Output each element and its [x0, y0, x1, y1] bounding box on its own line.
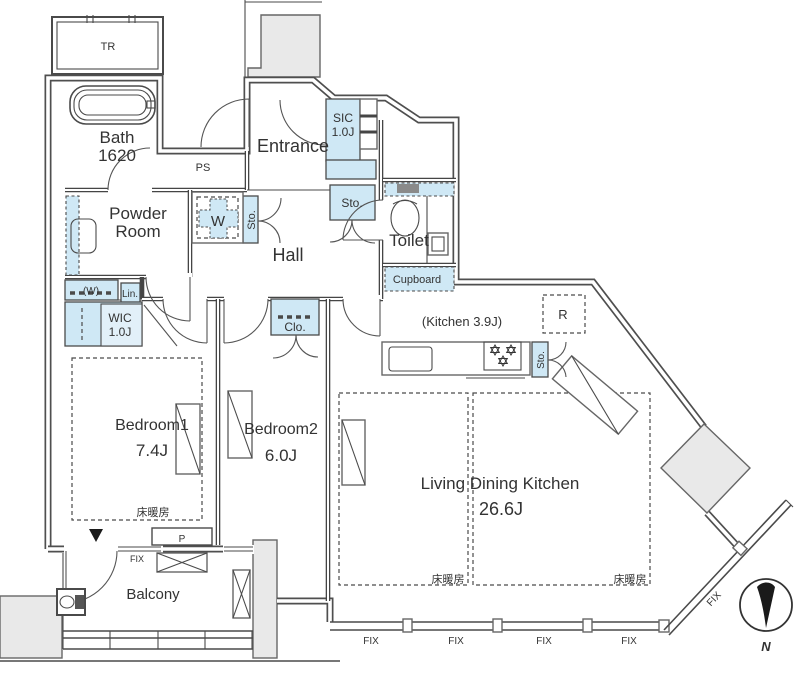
label-floor-heating-bd1: 床暖房	[137, 505, 170, 519]
label-pipe: P	[179, 534, 186, 545]
label-bedroom1-size: 7.4J	[136, 441, 168, 460]
label-fix-2: FIX	[448, 636, 464, 647]
label-fix-balcony: FIX	[130, 554, 144, 564]
label-hall: Hall	[272, 245, 303, 265]
label-toilet: Toilet	[389, 231, 429, 250]
label-bath-size: 1620	[98, 146, 136, 165]
sic-closet-lower	[326, 160, 376, 179]
partition-block	[253, 540, 277, 658]
sic-shelf	[360, 99, 377, 149]
toilet-cistern	[397, 184, 419, 193]
neighbor-block-bottom-left	[0, 596, 62, 658]
faucet-icon-dark	[75, 595, 84, 609]
label-refrigerator: R	[558, 307, 567, 322]
label-ps: PS	[196, 162, 211, 174]
floor-plan-svg: TR Bath 1620 PS Entrance SIC 1.0J Sto. S…	[0, 0, 800, 678]
label-storage-kitchen: Sto.	[536, 351, 547, 369]
label-floor-heating-ldk-right: 床暖房	[614, 572, 647, 586]
label-bath: Bath	[100, 128, 135, 147]
label-fix-3: FIX	[536, 636, 552, 647]
label-bedroom2: Bedroom2	[244, 421, 318, 438]
label-powder-2: Room	[115, 222, 160, 241]
label-linen: Lin.	[122, 289, 138, 300]
toilet-counter	[385, 183, 454, 196]
label-bedroom1: Bedroom1	[115, 417, 189, 434]
bottom-window-wall	[330, 619, 669, 632]
neighbor-block-top	[248, 15, 320, 77]
label-powder-1: Powder	[109, 204, 167, 223]
label-north: N	[761, 639, 771, 654]
label-washer: W	[211, 213, 226, 230]
label-entrance: Entrance	[257, 136, 329, 156]
label-wic-size: 1.0J	[109, 325, 132, 339]
compass	[740, 579, 792, 631]
label-fix-4: FIX	[621, 636, 637, 647]
pillar-column	[661, 424, 750, 513]
label-kitchen: (Kitchen 3.9J)	[422, 314, 502, 329]
label-bedroom2-size: 6.0J	[265, 446, 297, 465]
label-sic-size: 1.0J	[332, 125, 355, 139]
label-cupboard: Cupboard	[393, 274, 441, 286]
label-tr: TR	[101, 41, 116, 53]
label-fix-1: FIX	[363, 636, 379, 647]
label-closet: Clo.	[284, 320, 305, 334]
label-washer-paren: (W)	[83, 286, 99, 297]
bathtub	[70, 86, 155, 124]
label-wic: WIC	[108, 311, 132, 325]
label-ldk: Living Dining Kitchen	[421, 474, 580, 493]
label-ldk-size: 26.6J	[479, 499, 523, 519]
label-floor-heating-ldk-left: 床暖房	[432, 572, 465, 586]
direction-triangle-icon	[89, 529, 103, 542]
label-balcony: Balcony	[126, 586, 180, 603]
kitchen-counter	[382, 342, 530, 378]
floor-plan: TR Bath 1620 PS Entrance SIC 1.0J Sto. S…	[0, 0, 800, 678]
vanity-counter	[66, 196, 79, 275]
label-storage-entrance: Sto.	[341, 196, 362, 210]
label-sic: SIC	[333, 111, 353, 125]
label-storage-hall: Sto.	[246, 210, 258, 230]
